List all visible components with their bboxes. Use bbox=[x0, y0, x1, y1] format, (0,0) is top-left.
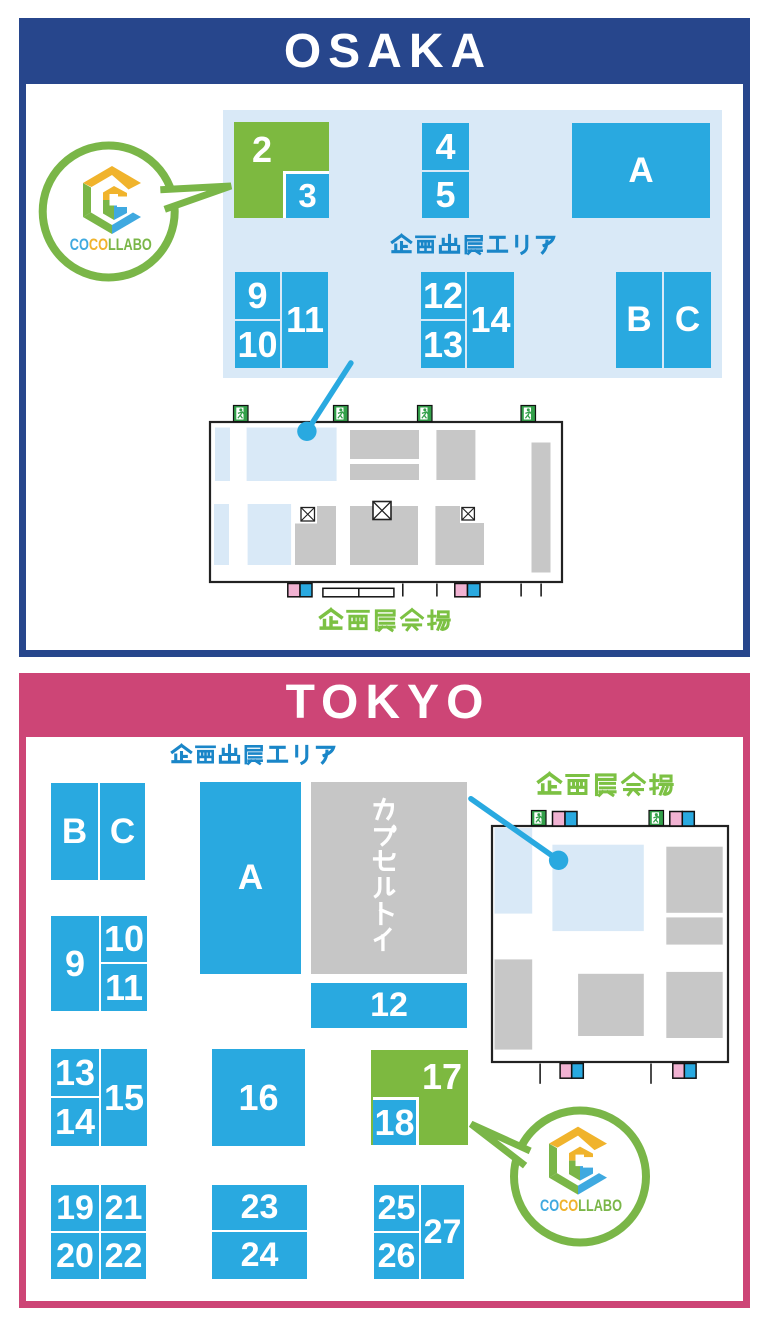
svg-text:COCOLLABO: COCOLLABO bbox=[540, 1196, 622, 1215]
svg-text:COCOLLABO: COCOLLABO bbox=[70, 235, 152, 254]
